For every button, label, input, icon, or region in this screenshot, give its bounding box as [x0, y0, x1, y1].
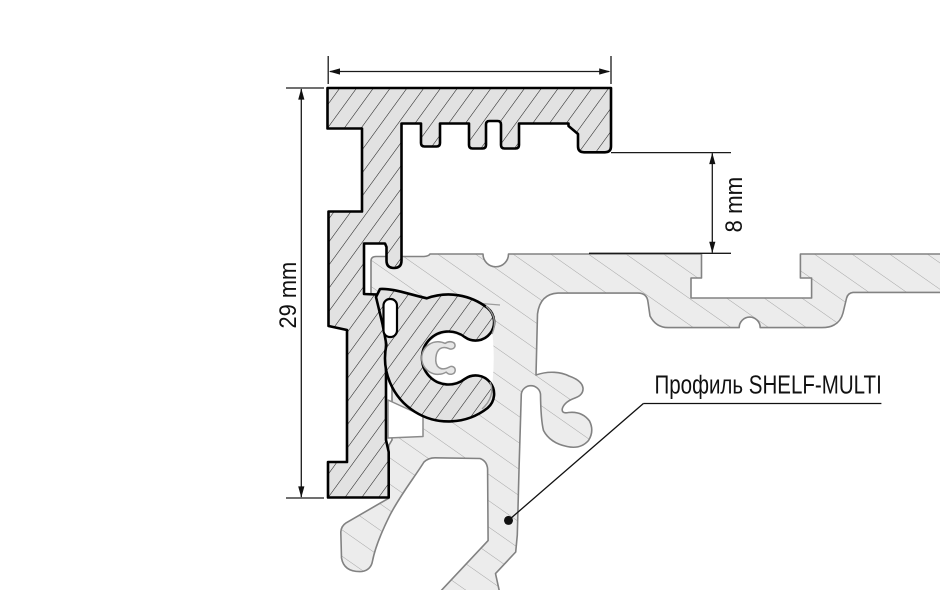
svg-text:8 mm: 8 mm [720, 177, 747, 233]
svg-text:Профиль SHELF-MULTI: Профиль SHELF-MULTI [655, 370, 882, 399]
svg-text:29 mm: 29 mm [274, 262, 301, 329]
